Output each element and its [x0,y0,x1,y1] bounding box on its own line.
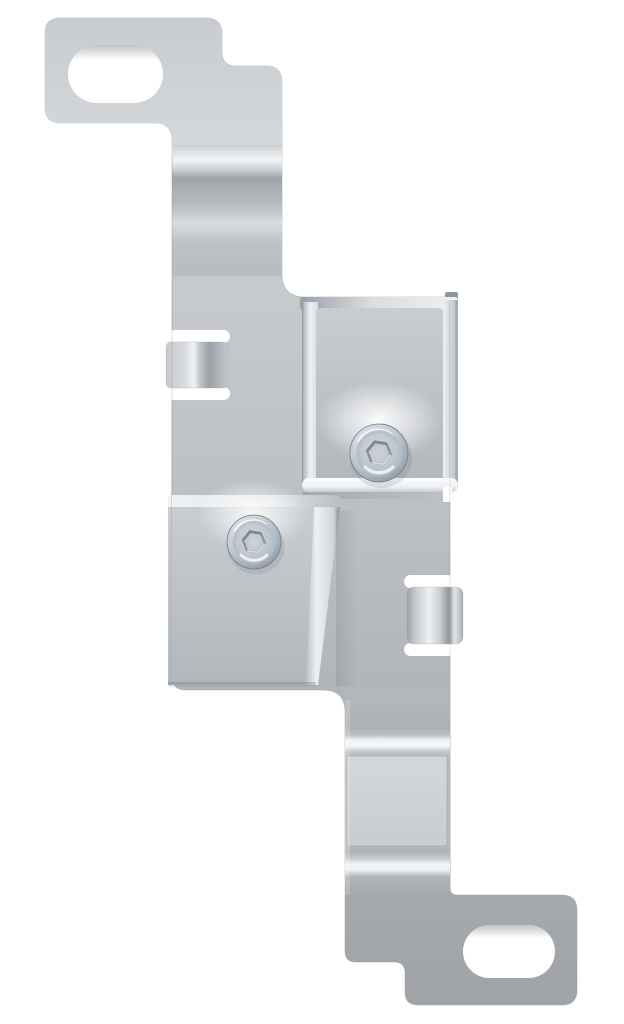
upper-boss-edge-notch [443,487,452,502]
left-clip-bent-tab [166,342,228,388]
bracket-illustration [0,0,624,1024]
bottom-mounting-tab [460,924,560,978]
right-clip-bent-tab [407,587,463,644]
lower-bend-strap [345,690,450,895]
upper-bend-strap [172,145,282,276]
right-lance-tab [404,575,463,656]
left-clip-upper-slot [168,330,230,343]
right-clip-lower-slot [404,643,454,656]
upper-boss-left-side-face [302,302,318,487]
product-photo-canvas [0,0,624,1024]
left-clip-lower-slot [168,387,230,400]
left-lance-tab [166,330,230,400]
lower-boss-bottom-edge [168,682,316,688]
upper-hex-socket-floor [374,448,385,459]
lower-boss-cast-shadow [336,510,358,686]
upper-boss-right-side-face [443,300,458,487]
upper-screw-boss [300,292,458,502]
top-slot-hole [64,44,168,103]
lower-hex-socket-floor [249,537,259,547]
lower-strap-edge-highlight [345,700,350,895]
bottom-slot-hole [460,924,560,978]
right-clip-upper-slot [404,575,454,588]
lower-strap-tilted-panel [347,756,447,846]
